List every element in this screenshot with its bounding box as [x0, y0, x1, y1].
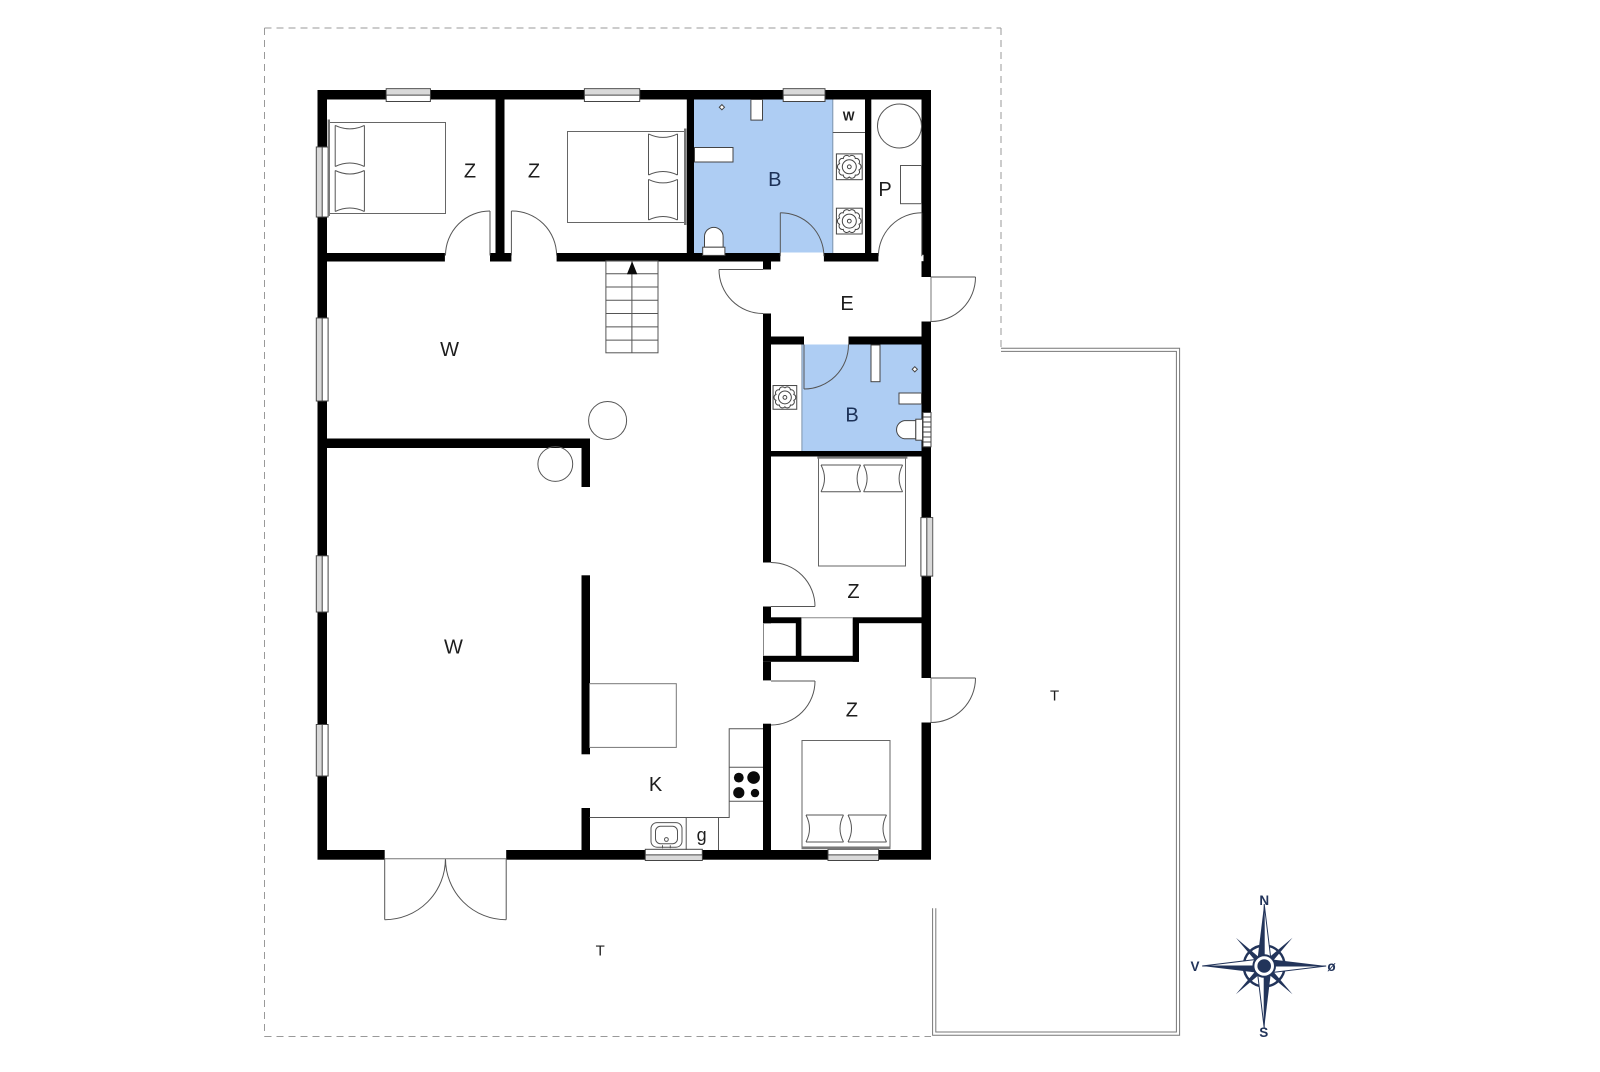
- svg-text:ø: ø: [1327, 959, 1336, 974]
- svg-text:T: T: [596, 943, 605, 960]
- svg-text:S: S: [1259, 1025, 1268, 1040]
- svg-text:Z: Z: [846, 700, 858, 722]
- svg-text:B: B: [845, 404, 858, 426]
- svg-text:N: N: [1259, 893, 1269, 908]
- svg-text:Z: Z: [847, 581, 859, 603]
- svg-text:W: W: [440, 339, 459, 361]
- svg-text:P: P: [878, 179, 891, 201]
- svg-text:B: B: [768, 169, 781, 191]
- svg-text:g: g: [697, 825, 707, 845]
- svg-text:K: K: [649, 774, 663, 796]
- svg-text:E: E: [840, 293, 853, 315]
- svg-text:Z: Z: [528, 160, 540, 182]
- svg-text:V: V: [1190, 959, 1199, 974]
- svg-text:T: T: [1050, 687, 1059, 704]
- svg-text:W: W: [843, 109, 855, 123]
- svg-text:W: W: [444, 636, 463, 658]
- svg-text:Z: Z: [464, 160, 476, 182]
